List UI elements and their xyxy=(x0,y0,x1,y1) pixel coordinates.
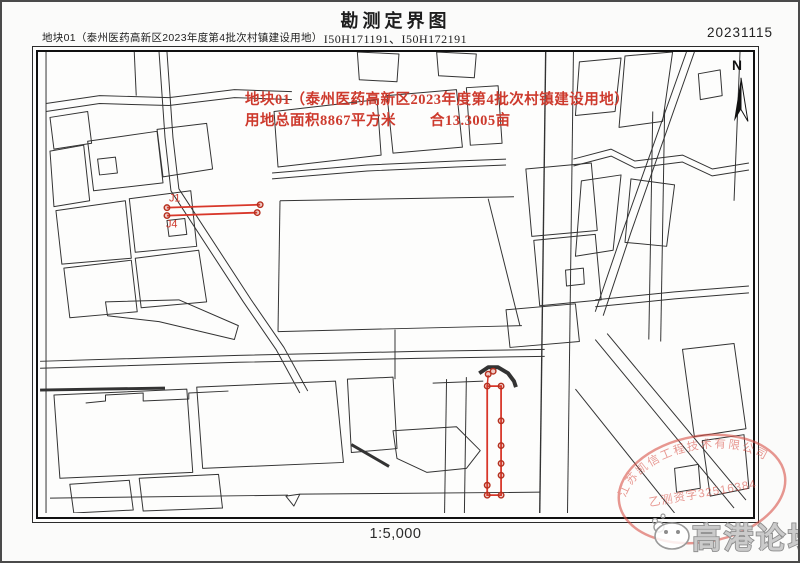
red-boundary-layer xyxy=(164,202,504,498)
survey-sheet: 勘测定界图 I50H171191、I50H172191 地块01（泰州医药高新区… xyxy=(0,0,800,563)
map-canvas: J1 J4 N 地块01（泰州医药高新区2023年度第4批次村镇建设用地） 用地… xyxy=(36,50,755,519)
boundary-point-label-j4: J4 xyxy=(166,218,178,230)
parcel-header-label: 地块01（泰州医药高新区2023年度第4批次村镇建设用地） xyxy=(42,30,323,45)
north-arrow-icon: N xyxy=(732,57,748,122)
annotation-line2: 用地总面积8867平方米合13.3005亩 xyxy=(245,111,629,132)
annotation-area: 用地总面积8867平方米 xyxy=(245,113,396,129)
annotation-line1: 地块01（泰州医药高新区2023年度第4批次村镇建设用地） xyxy=(245,90,629,111)
boundary-point-label-j1: J1 xyxy=(169,193,181,205)
north-label: N xyxy=(732,57,742,73)
red-annotation: 地块01（泰州医药高新区2023年度第4批次村镇建设用地） 用地总面积8867平… xyxy=(245,90,629,132)
annotation-mu: 合13.3005亩 xyxy=(430,111,511,132)
date-label: 20231115 xyxy=(707,25,773,40)
map-frame: J1 J4 N 地块01（泰州医药高新区2023年度第4批次村镇建设用地） 用地… xyxy=(32,46,759,523)
map-scale: 1:5,000 xyxy=(32,526,759,542)
